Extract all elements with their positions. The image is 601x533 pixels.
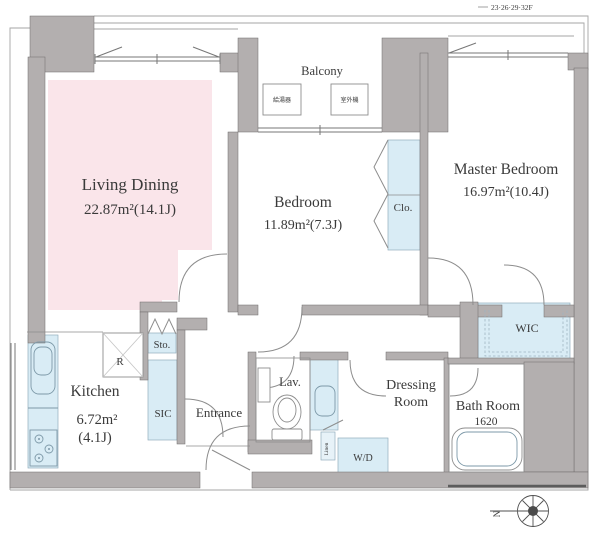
- bedroom-area: 11.89m²(7.3J): [264, 218, 343, 233]
- linen-label: Linen: [324, 442, 330, 455]
- vanity-area: [310, 358, 338, 430]
- compass-north-label: N: [492, 510, 502, 517]
- sic-label: SIC: [154, 408, 171, 420]
- kitchen-label: Kitchen: [70, 383, 119, 400]
- dressing-door-arc: [350, 360, 386, 396]
- compass-icon: N: [490, 496, 549, 527]
- master-door-arc: [428, 258, 473, 305]
- shoe-in-closet: [148, 360, 177, 440]
- kitchen-area-1: 6.72m²: [76, 412, 118, 428]
- closet-label: Clo.: [394, 202, 413, 214]
- bath-door-arc: [450, 368, 478, 396]
- balcony-label: Balcony: [301, 64, 343, 78]
- dressing-room-label-1: Dressing: [386, 378, 436, 393]
- bath-room-label: Bath Room: [456, 399, 520, 414]
- kitchen-counter: [28, 335, 58, 468]
- washer-dryer-label: W/D: [353, 453, 372, 464]
- refrigerator-space: [103, 333, 143, 377]
- entrance-label: Entrance: [196, 405, 242, 420]
- bath-room-size: 1620: [475, 416, 498, 428]
- refrigerator-label: R: [116, 356, 124, 368]
- bedroom-label: Bedroom: [274, 194, 332, 211]
- dressing-room-label-2: Room: [394, 395, 428, 410]
- storage-folding-door: [148, 319, 176, 334]
- living-window: [95, 47, 220, 64]
- living-door-arc: [179, 254, 227, 302]
- wic-label: WIC: [515, 321, 538, 335]
- floor-label: 23·26·29·32F: [491, 3, 533, 12]
- master-bedroom-window: [448, 43, 568, 60]
- equipment-box-1-label: 給湯器: [273, 96, 291, 104]
- closet-folding-door: [374, 140, 388, 248]
- wic-door-arc: [504, 265, 544, 305]
- living-dining-label: Living Dining: [82, 175, 179, 194]
- kitchen-side-window: [11, 343, 15, 470]
- kitchen-area-2: (4.1J): [78, 430, 112, 446]
- entrance-door-arc: [206, 426, 250, 470]
- equipment-box-2-label: 室外機: [340, 96, 358, 104]
- lavatory-cabinet: [258, 368, 270, 402]
- master-bedroom-label: Master Bedroom: [454, 161, 559, 178]
- lavatory-label: Lav.: [279, 375, 301, 389]
- entrance-door-leaf: [212, 450, 250, 470]
- bedroom-door-arc: [258, 307, 302, 352]
- floor-plan-page: N 23·26·29·32F Balcony 給湯器 室外機 Living Di…: [0, 0, 601, 533]
- living-dining-floor: [48, 80, 212, 310]
- toilet-icon: [272, 395, 302, 440]
- bathtub-icon: [452, 428, 522, 470]
- bedroom-window: [258, 125, 382, 135]
- master-bedroom-area: 16.97m²(10.4J): [463, 185, 549, 200]
- floor-plan: N 23·26·29·32F Balcony 給湯器 室外機 Living Di…: [0, 0, 601, 533]
- living-dining-area: 22.87m²(14.1J): [84, 202, 176, 218]
- storage-label: Sto.: [154, 340, 171, 351]
